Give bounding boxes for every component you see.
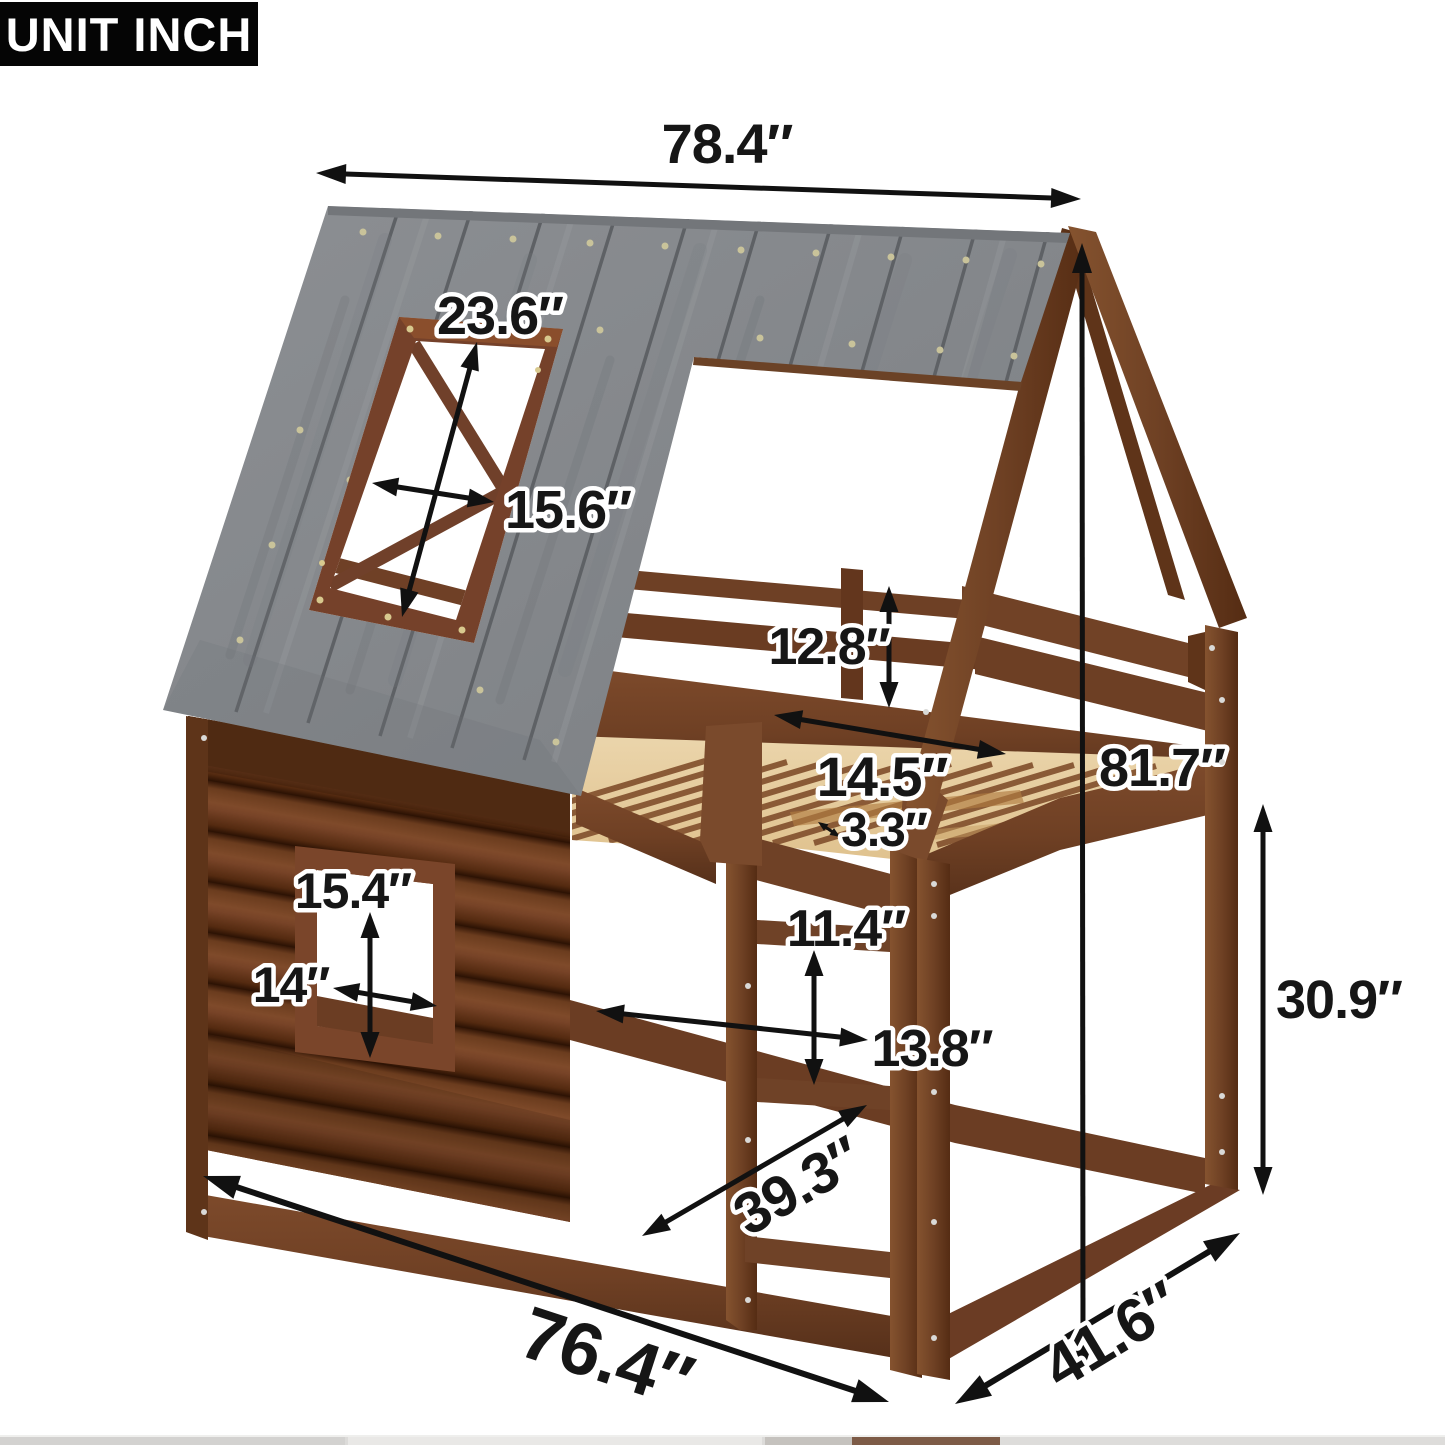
svg-text:14.5″: 14.5″ xyxy=(817,745,948,808)
svg-text:13.8″: 13.8″ xyxy=(871,1020,992,1078)
svg-text:3.3″: 3.3″ xyxy=(841,804,928,857)
svg-text:30.9″: 30.9″ xyxy=(1276,970,1402,1030)
svg-text:15.4″: 15.4″ xyxy=(295,863,412,919)
svg-text:12.8″: 12.8″ xyxy=(768,618,889,676)
svg-text:78.4″: 78.4″ xyxy=(662,112,793,175)
svg-text:14″: 14″ xyxy=(253,957,331,1013)
svg-text:UNIT INCH: UNIT INCH xyxy=(6,8,253,61)
svg-text:15.6″: 15.6″ xyxy=(505,480,631,540)
svg-text:23.6″: 23.6″ xyxy=(437,286,563,346)
svg-text:11.4″: 11.4″ xyxy=(787,900,905,958)
svg-text:81.7″: 81.7″ xyxy=(1099,738,1225,798)
